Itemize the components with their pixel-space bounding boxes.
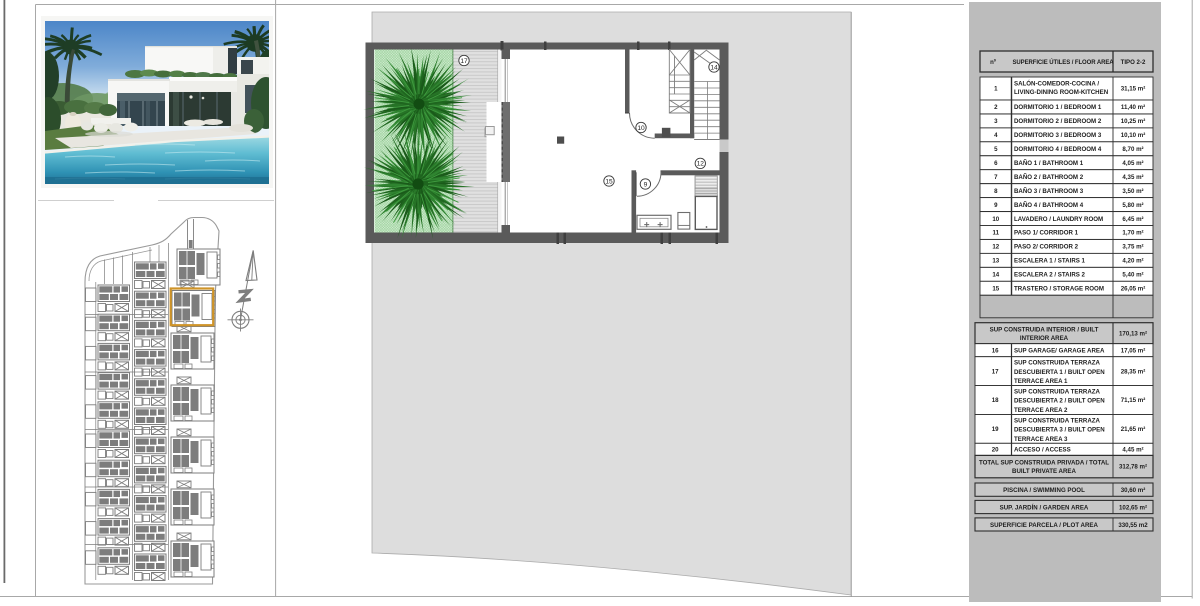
svg-text:6,45 m²: 6,45 m² <box>1122 216 1143 223</box>
svg-text:10,10 m²: 10,10 m² <box>1121 132 1146 139</box>
svg-text:SALÓN-COMEDOR-COCINA /: SALÓN-COMEDOR-COCINA / <box>1014 79 1099 87</box>
svg-text:SUP GARAGE/ GARAGE AREA: SUP GARAGE/ GARAGE AREA <box>1014 347 1105 354</box>
svg-text:28,35 m²: 28,35 m² <box>1121 368 1146 375</box>
svg-text:DESCUBIERTA 2 / BUILT OPEN: DESCUBIERTA 2 / BUILT OPEN <box>1014 398 1105 405</box>
svg-text:17: 17 <box>460 58 468 65</box>
svg-text:DORMITORIO 4 / BEDROOM 4: DORMITORIO 4 / BEDROOM 4 <box>1014 146 1102 153</box>
svg-text:TIPO 2-2: TIPO 2-2 <box>1121 59 1146 66</box>
svg-text:DORMITORIO 2 / BEDROOM 2: DORMITORIO 2 / BEDROOM 2 <box>1014 118 1102 125</box>
svg-text:7: 7 <box>994 174 998 181</box>
svg-text:12: 12 <box>697 161 705 168</box>
svg-text:4: 4 <box>994 132 998 139</box>
svg-text:102,65 m²: 102,65 m² <box>1119 505 1147 512</box>
svg-text:18: 18 <box>992 397 999 404</box>
svg-text:4,20 m²: 4,20 m² <box>1122 258 1143 265</box>
svg-text:5: 5 <box>994 146 998 153</box>
svg-text:1: 1 <box>994 86 998 93</box>
svg-text:SUP CONSTRUIDA TERRAZA: SUP CONSTRUIDA TERRAZA <box>1014 418 1101 425</box>
svg-text:14: 14 <box>710 64 718 71</box>
svg-text:14: 14 <box>992 272 999 279</box>
svg-text:ACCESO / ACCESS: ACCESO / ACCESS <box>1014 447 1071 454</box>
svg-text:SUPERFICIE PARCELA / PLOT AREA: SUPERFICIE PARCELA / PLOT AREA <box>990 522 1098 529</box>
svg-text:LIVING-DINING ROOM-KITCHEN: LIVING-DINING ROOM-KITCHEN <box>1014 89 1109 96</box>
svg-text:DORMITORIO 3 / BEDROOM 3: DORMITORIO 3 / BEDROOM 3 <box>1014 132 1102 139</box>
svg-text:PASO 1/ CORRIDOR 1: PASO 1/ CORRIDOR 1 <box>1014 230 1079 237</box>
svg-text:DESCUBIERTA 3 / BUILT OPEN: DESCUBIERTA 3 / BUILT OPEN <box>1014 427 1105 434</box>
svg-text:6: 6 <box>994 160 998 167</box>
svg-text:312,78 m²: 312,78 m² <box>1119 464 1147 471</box>
svg-text:4,35 m²: 4,35 m² <box>1122 174 1143 181</box>
svg-text:15: 15 <box>992 286 999 293</box>
svg-text:SUP CONSTRUIDA TERRAZA: SUP CONSTRUIDA TERRAZA <box>1014 389 1101 396</box>
svg-text:SUP CONSTRUIDA INTERIOR / BUIL: SUP CONSTRUIDA INTERIOR / BUILT <box>990 327 1099 334</box>
svg-text:5,80 m²: 5,80 m² <box>1122 202 1143 209</box>
svg-text:TOTAL SUP CONSTRUIDA PRIVADA /: TOTAL SUP CONSTRUIDA PRIVADA / TOTAL <box>979 459 1109 466</box>
svg-text:10,25 m²: 10,25 m² <box>1121 118 1146 125</box>
svg-text:nº: nº <box>990 60 997 66</box>
svg-text:BAÑO 4 / BATHROOM 4: BAÑO 4 / BATHROOM 4 <box>1014 202 1084 209</box>
svg-text:4,05 m²: 4,05 m² <box>1122 160 1143 167</box>
svg-text:3,50 m²: 3,50 m² <box>1122 188 1143 195</box>
svg-text:10: 10 <box>992 216 999 223</box>
svg-text:21,65 m²: 21,65 m² <box>1121 426 1146 433</box>
svg-text:ESCALERA 1 / STAIRS 1: ESCALERA 1 / STAIRS 1 <box>1014 258 1086 265</box>
svg-text:170,13 m²: 170,13 m² <box>1119 331 1147 338</box>
svg-text:DESCUBIERTA 1 / BUILT OPEN: DESCUBIERTA 1 / BUILT OPEN <box>1014 369 1105 376</box>
svg-text:TERRACE AREA 3: TERRACE AREA 3 <box>1014 436 1068 443</box>
svg-text:SUP. JARDÍN / GARDEN AREA: SUP. JARDÍN / GARDEN AREA <box>1000 504 1089 512</box>
svg-text:9: 9 <box>994 202 998 209</box>
svg-text:BAÑO 3 / BATHROOM 3: BAÑO 3 / BATHROOM 3 <box>1014 188 1084 195</box>
svg-text:30,60 m²: 30,60 m² <box>1121 487 1146 494</box>
svg-text:31,15 m²: 31,15 m² <box>1121 86 1146 93</box>
svg-text:4,45 m²: 4,45 m² <box>1122 447 1143 454</box>
svg-text:17,05 m²: 17,05 m² <box>1121 347 1146 354</box>
svg-text:3,75 m²: 3,75 m² <box>1122 244 1143 251</box>
svg-text:TERRACE AREA 2: TERRACE AREA 2 <box>1014 407 1068 414</box>
svg-text:ESCALERA 2 / STAIRS 2: ESCALERA 2 / STAIRS 2 <box>1014 272 1086 279</box>
svg-text:SUPERFICIE ÚTILES / FLOOR AREA: SUPERFICIE ÚTILES / FLOOR AREA <box>1012 59 1114 66</box>
svg-text:2: 2 <box>994 104 998 111</box>
svg-text:TRASTERO / STORAGE ROOM: TRASTERO / STORAGE ROOM <box>1014 286 1104 293</box>
svg-text:19: 19 <box>992 426 999 433</box>
svg-text:11,40 m²: 11,40 m² <box>1121 104 1145 111</box>
svg-text:PISCINA / SWIMMING POOL: PISCINA / SWIMMING POOL <box>1003 487 1085 494</box>
svg-text:1,70 m²: 1,70 m² <box>1122 230 1143 237</box>
svg-text:20: 20 <box>992 447 999 454</box>
svg-text:LAVADERO / LAUNDRY ROOM: LAVADERO / LAUNDRY ROOM <box>1014 216 1103 223</box>
svg-text:15: 15 <box>605 178 613 185</box>
svg-text:16: 16 <box>992 347 999 354</box>
svg-text:71,15 m²: 71,15 m² <box>1121 397 1146 404</box>
svg-text:DORMITORIO 1 / BEDROOM 1: DORMITORIO 1 / BEDROOM 1 <box>1014 104 1102 111</box>
svg-text:12: 12 <box>992 244 999 251</box>
svg-text:SUP CONSTRUIDA TERRAZA: SUP CONSTRUIDA TERRAZA <box>1014 360 1101 367</box>
svg-text:10: 10 <box>637 125 645 132</box>
svg-text:3: 3 <box>994 118 998 125</box>
svg-text:13: 13 <box>992 258 999 265</box>
svg-text:17: 17 <box>992 368 999 375</box>
svg-text:BAÑO 1 / BATHROOM 1: BAÑO 1 / BATHROOM 1 <box>1014 160 1084 167</box>
svg-text:PASO 2/ CORRIDOR 2: PASO 2/ CORRIDOR 2 <box>1014 244 1079 251</box>
svg-text:BUILT PRIVATE AREA: BUILT PRIVATE AREA <box>1012 468 1076 475</box>
svg-text:5,40 m²: 5,40 m² <box>1122 272 1143 279</box>
svg-text:330,55 m2: 330,55 m2 <box>1118 522 1148 529</box>
svg-text:11: 11 <box>993 230 1000 237</box>
svg-text:8: 8 <box>994 188 998 195</box>
svg-text:8,70 m²: 8,70 m² <box>1122 146 1143 153</box>
svg-text:INTERIOR AREA: INTERIOR AREA <box>1020 335 1069 342</box>
svg-text:TERRACE AREA 1: TERRACE AREA 1 <box>1014 378 1068 385</box>
svg-text:26,05 m²: 26,05 m² <box>1121 286 1146 293</box>
svg-text:BAÑO 2 / BATHROOM 2: BAÑO 2 / BATHROOM 2 <box>1014 174 1084 181</box>
svg-text:9: 9 <box>644 181 648 188</box>
